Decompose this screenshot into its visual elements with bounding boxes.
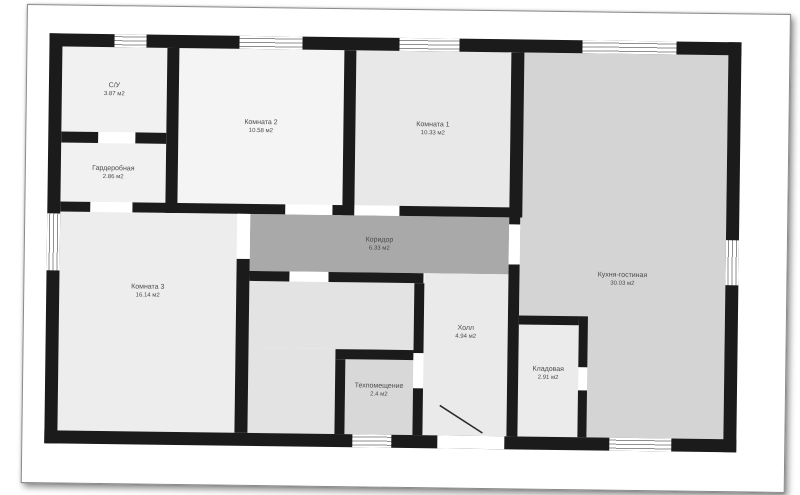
room-name: Техпомещение bbox=[355, 381, 404, 391]
room-bedroom-1: Комната 1 10.33 м2 bbox=[354, 50, 511, 207]
window bbox=[114, 34, 146, 47]
room-unlabeled bbox=[247, 348, 335, 434]
wall bbox=[519, 315, 579, 325]
room-area: 10.33 м2 bbox=[416, 129, 449, 137]
door-opening bbox=[90, 202, 132, 213]
window bbox=[582, 40, 676, 54]
wall bbox=[578, 316, 588, 367]
room-name: Комната 2 bbox=[244, 118, 277, 127]
room-name: Кладовая bbox=[533, 364, 564, 373]
window bbox=[352, 434, 391, 448]
door-opening bbox=[285, 204, 332, 215]
window bbox=[725, 240, 739, 285]
door-opening bbox=[413, 353, 423, 388]
wall bbox=[135, 132, 166, 143]
wall bbox=[334, 359, 345, 434]
wall bbox=[577, 390, 587, 437]
room-hall: Холл 4.94 м2 bbox=[422, 273, 508, 436]
room-area: 4.94 м2 bbox=[455, 333, 476, 341]
wall bbox=[399, 206, 520, 218]
door-opening bbox=[237, 214, 251, 259]
room-name: Холл bbox=[455, 324, 476, 333]
window bbox=[609, 438, 671, 452]
wall bbox=[60, 201, 90, 211]
wall bbox=[335, 349, 413, 360]
window bbox=[47, 213, 61, 270]
room-wardrobe-label: Гардеробная 2.86 м2 bbox=[92, 164, 135, 182]
room-storage-label: Кладовая 2.91 м2 bbox=[532, 364, 564, 381]
door-opening bbox=[354, 205, 399, 216]
room-area: 30.03 м2 bbox=[519, 278, 725, 289]
wall bbox=[413, 283, 424, 353]
wall bbox=[249, 271, 289, 282]
wall bbox=[328, 272, 423, 283]
room-corridor-label: Коридор 6.33 м2 bbox=[365, 235, 393, 252]
room-name: Коридор bbox=[366, 235, 394, 244]
room-name: С/У bbox=[104, 81, 125, 90]
room-bathroom-label: С/У 3.87 м2 bbox=[104, 81, 125, 98]
wall bbox=[509, 52, 524, 217]
floorplan-photo: С/У 3.87 м2 Гардеробная 2.86 м2 Комната … bbox=[21, 4, 791, 493]
wall bbox=[509, 207, 520, 224]
room-hall-label: Холл 4.94 м2 bbox=[455, 324, 476, 341]
room-corridor: Коридор 6.33 м2 bbox=[250, 214, 510, 274]
window bbox=[399, 38, 459, 52]
room-bedroom-1-label: Комната 1 10.33 м2 bbox=[416, 120, 449, 137]
wall bbox=[61, 131, 98, 142]
wall bbox=[342, 50, 356, 215]
room-utility-label: Техпомещение 2.4 м2 bbox=[354, 381, 403, 399]
door-opening bbox=[578, 367, 587, 390]
room-name: Гардеробная bbox=[92, 164, 134, 174]
room-name: Комната 3 bbox=[131, 282, 164, 291]
room-area: 2.91 м2 bbox=[532, 373, 563, 381]
door-opening bbox=[509, 224, 521, 264]
room-area: 2.4 м2 bbox=[354, 390, 403, 399]
room-bedroom-3-label: Комната 3 16.14 м2 bbox=[131, 282, 164, 299]
room-storage: Кладовая 2.91 м2 bbox=[517, 324, 578, 437]
room-bedroom-3: Комната 3 16.14 м2 bbox=[57, 211, 237, 432]
room-area: 6.33 м2 bbox=[365, 244, 393, 252]
room-area: 3.87 м2 bbox=[104, 90, 125, 98]
room-kitchen-living-label: Кухня-гостиная 30.03 м2 bbox=[519, 269, 725, 289]
wall bbox=[165, 48, 179, 213]
window bbox=[239, 36, 302, 50]
room-utility: Техпомещение 2.4 м2 bbox=[344, 359, 413, 435]
room-unlabeled bbox=[249, 281, 415, 350]
room-bathroom: С/У 3.87 м2 bbox=[61, 46, 167, 132]
room-area: 16.14 м2 bbox=[131, 291, 164, 299]
room-bedroom-2: Комната 2 10.58 м2 bbox=[177, 48, 344, 205]
room-bedroom-2-label: Комната 2 10.58 м2 bbox=[244, 118, 277, 135]
wall bbox=[234, 259, 249, 433]
wall bbox=[506, 264, 519, 436]
door-opening bbox=[98, 132, 135, 143]
room-wardrobe: Гардеробная 2.86 м2 bbox=[60, 142, 166, 202]
room-area: 2.86 м2 bbox=[92, 173, 134, 182]
room-name: Комната 1 bbox=[416, 120, 449, 129]
door-opening bbox=[289, 271, 328, 282]
wall bbox=[412, 388, 423, 435]
wall bbox=[132, 202, 285, 214]
entrance-opening bbox=[437, 435, 504, 449]
room-area: 10.58 м2 bbox=[244, 127, 277, 135]
floorplan: С/У 3.87 м2 Гардеробная 2.86 м2 Комната … bbox=[44, 33, 741, 452]
